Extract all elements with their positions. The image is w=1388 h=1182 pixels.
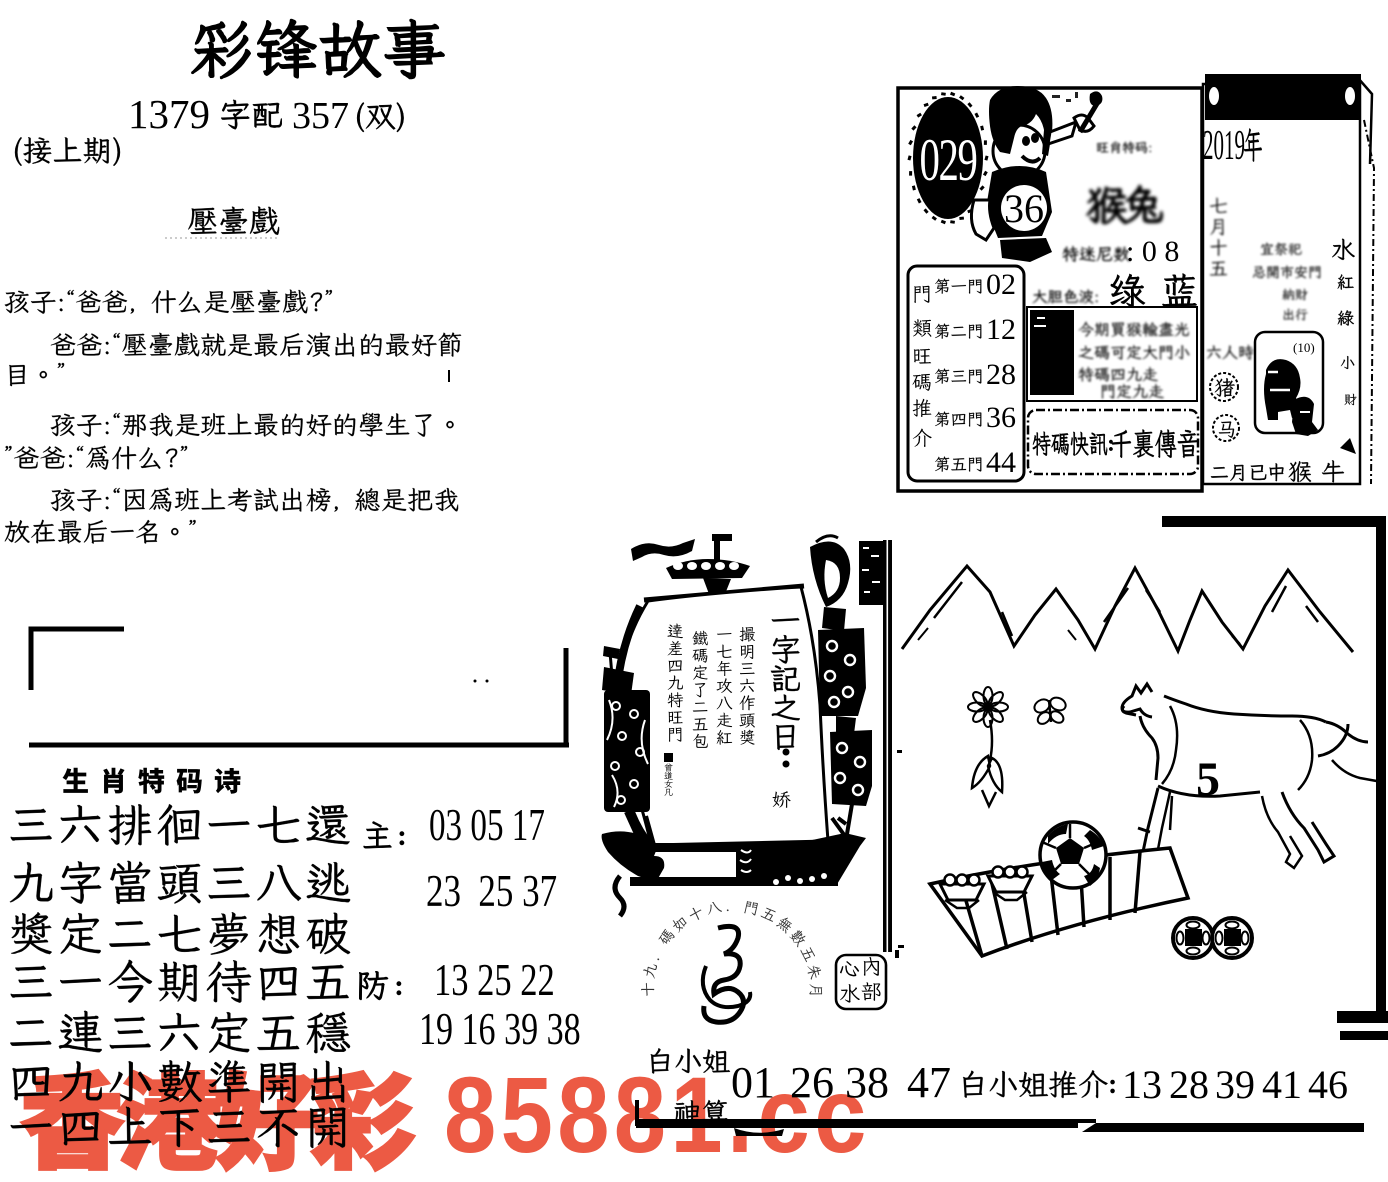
- svg-text:2019: 2019: [1203, 122, 1245, 169]
- svg-text:46: 46: [1308, 1062, 1348, 1107]
- svg-text::: :: [394, 969, 404, 1002]
- svg-text:36: 36: [986, 401, 1016, 434]
- svg-text:19 16 39 38: 19 16 39 38: [419, 1003, 581, 1054]
- svg-text:26: 26: [790, 1058, 834, 1107]
- svg-text::: :: [1108, 1069, 1117, 1100]
- svg-text:03 05 17: 03 05 17: [429, 799, 545, 851]
- svg-text:13 25 22: 13 25 22: [434, 954, 555, 1005]
- svg-text:01: 01: [731, 1058, 775, 1107]
- svg-text:12: 12: [986, 313, 1016, 346]
- svg-text:357: 357: [292, 95, 349, 137]
- svg-text:23 25 37: 23 25 37: [426, 865, 557, 916]
- svg-text:13: 13: [1122, 1062, 1162, 1107]
- svg-text:39: 39: [1215, 1062, 1255, 1107]
- svg-text::: :: [397, 819, 407, 852]
- svg-text:44: 44: [986, 446, 1016, 479]
- svg-text:02: 02: [986, 268, 1016, 301]
- svg-text:28: 28: [1169, 1062, 1209, 1107]
- svg-text:41: 41: [1262, 1062, 1302, 1107]
- svg-text:5: 5: [1196, 753, 1220, 806]
- svg-text:36: 36: [1004, 186, 1044, 231]
- svg-text:029: 029: [919, 127, 976, 194]
- svg-text:: 0 8: : 0 8: [1126, 235, 1179, 268]
- svg-text:28: 28: [986, 358, 1016, 391]
- svg-text:1379: 1379: [128, 91, 210, 137]
- svg-text:(10): (10): [1293, 340, 1315, 355]
- svg-text:47: 47: [907, 1058, 951, 1107]
- svg-text:38: 38: [845, 1058, 889, 1107]
